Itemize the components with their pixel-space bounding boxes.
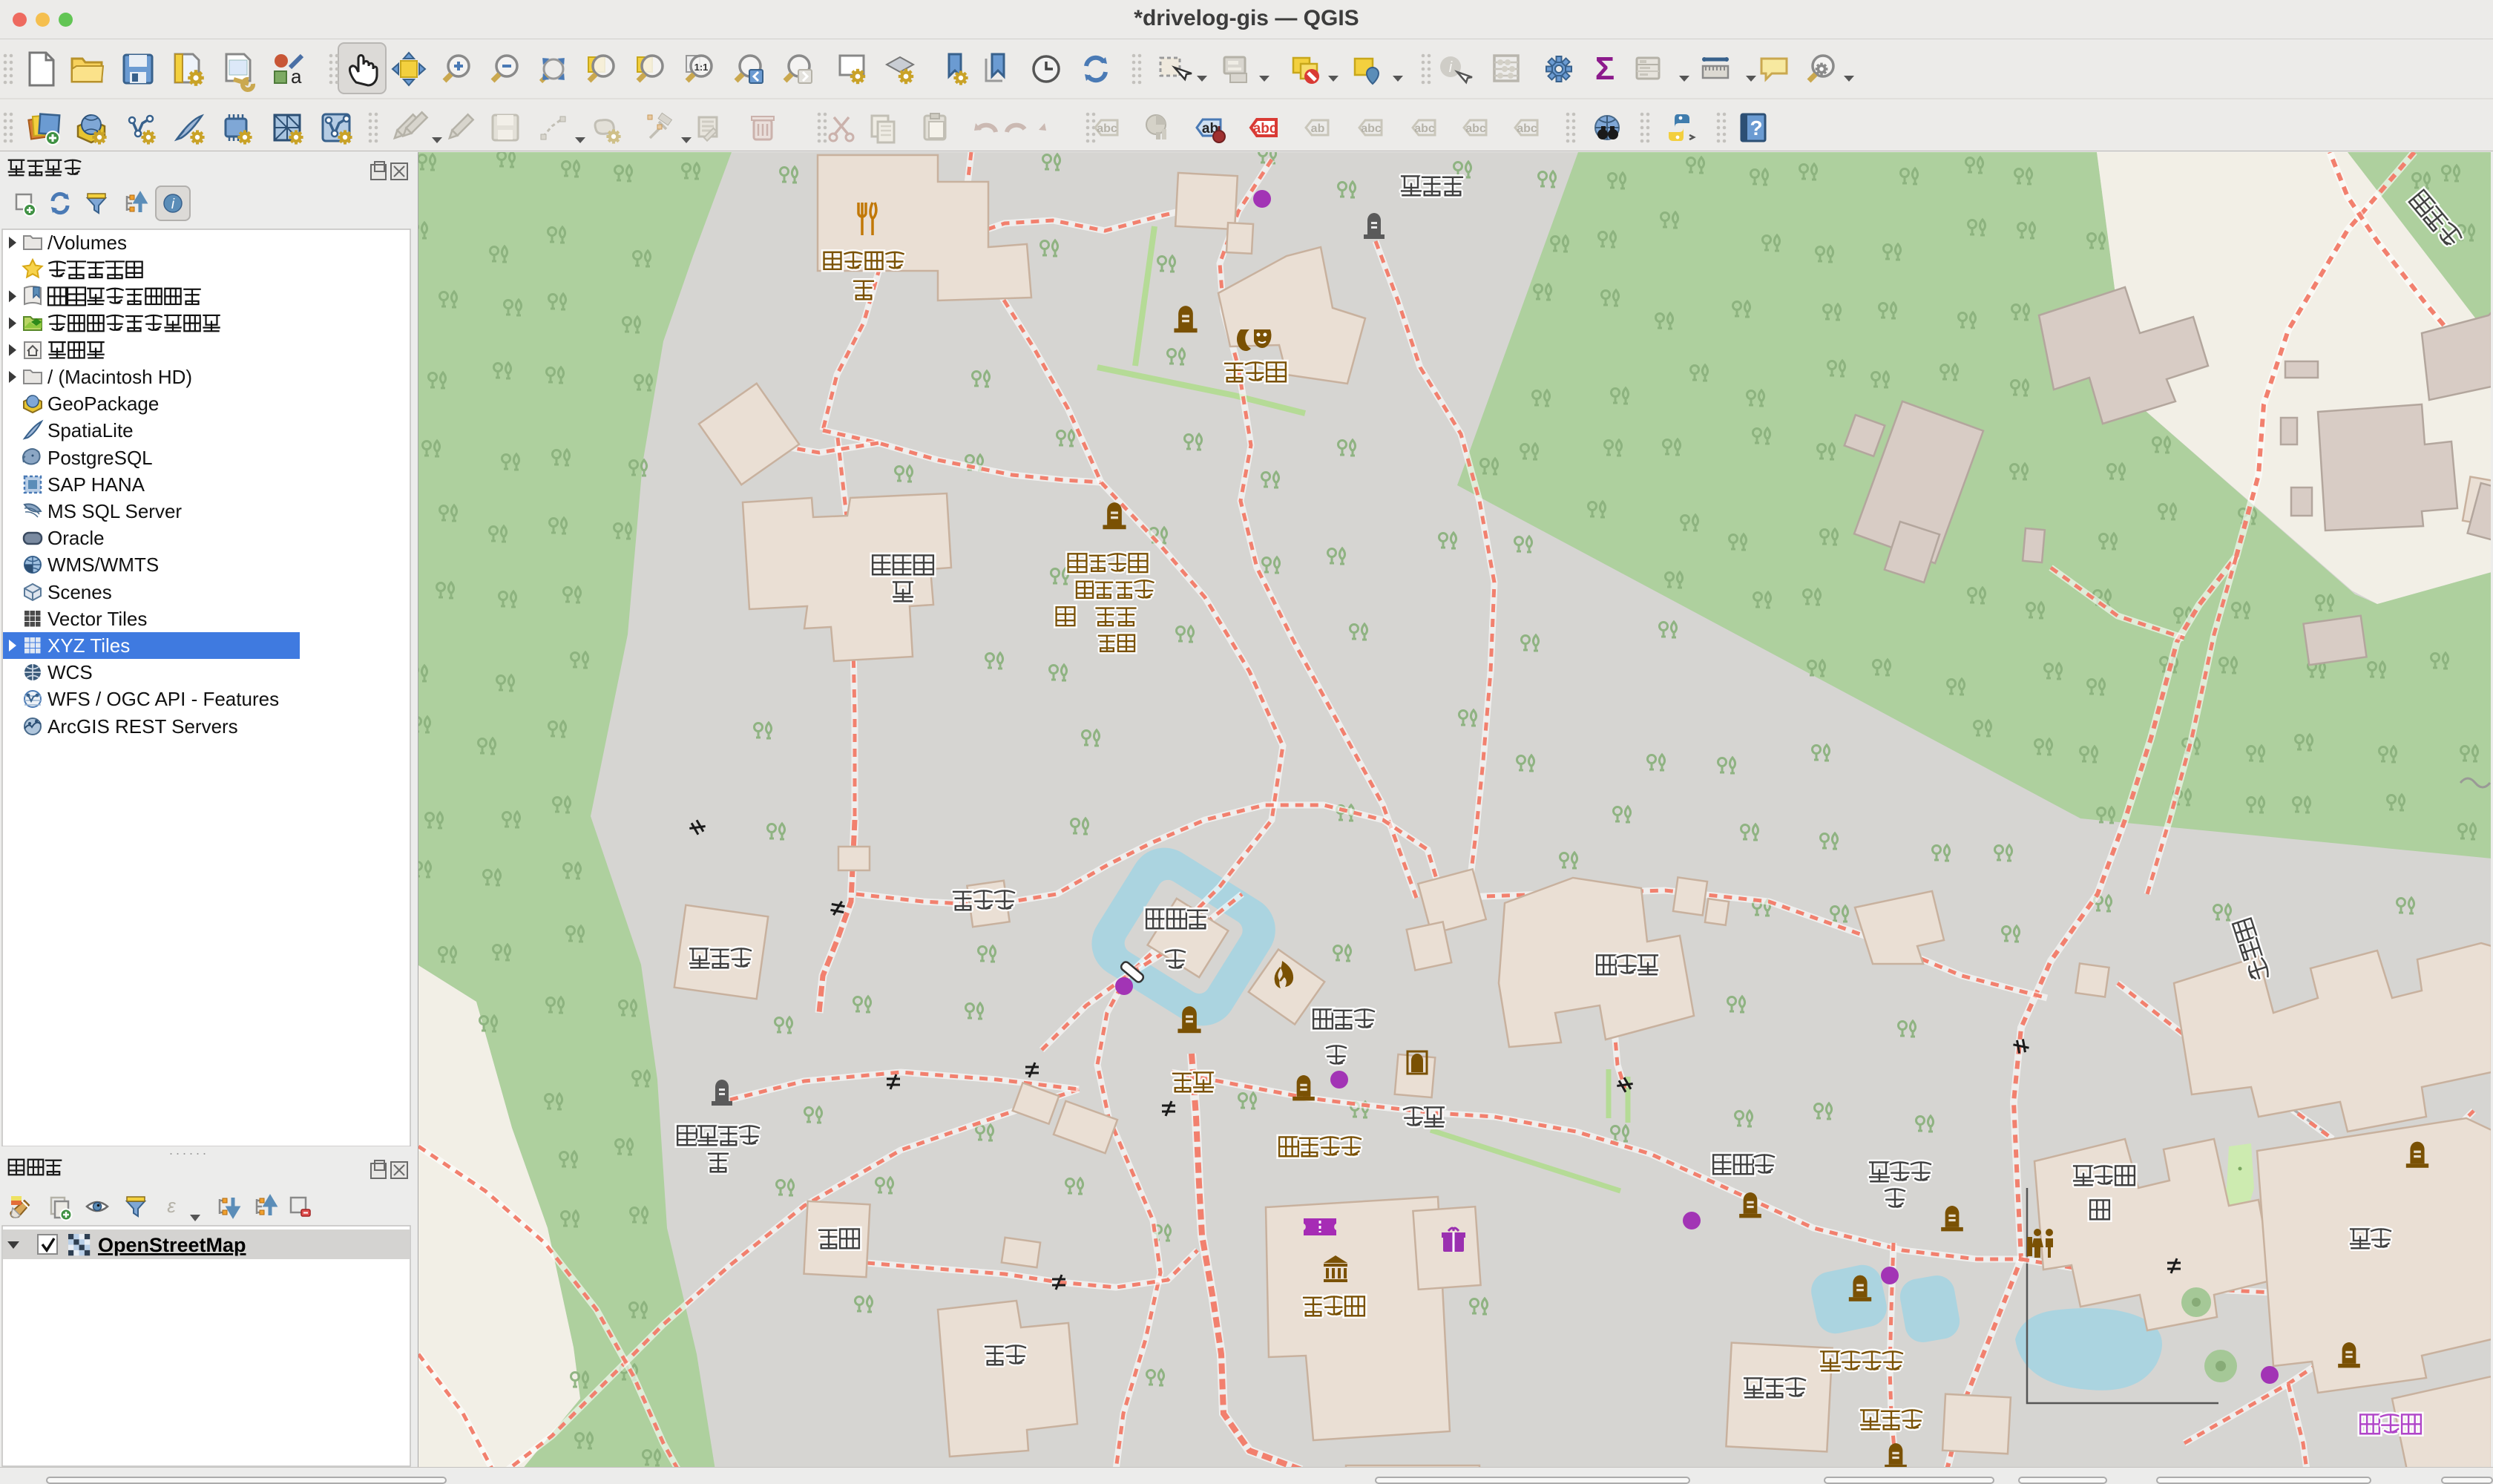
svg-text:/ (Macintosh HD): / (Macintosh HD) bbox=[47, 366, 192, 388]
svg-text:?: ? bbox=[1750, 116, 1762, 139]
svg-text:WMS/WMTS: WMS/WMTS bbox=[47, 554, 159, 576]
svg-text:Oracle: Oracle bbox=[47, 527, 105, 549]
svg-text:abc: abc bbox=[1097, 122, 1117, 135]
svg-text:ε: ε bbox=[167, 1195, 176, 1217]
svg-text:WFS / OGC API - Features: WFS / OGC API - Features bbox=[47, 688, 279, 710]
svg-text:abc: abc bbox=[1361, 122, 1382, 135]
svg-text:WCS: WCS bbox=[47, 661, 93, 683]
svg-text:abc: abc bbox=[1465, 122, 1486, 135]
svg-text:GeoPackage: GeoPackage bbox=[47, 393, 159, 415]
svg-text:i: i bbox=[1449, 59, 1453, 76]
svg-text:1:1: 1:1 bbox=[694, 62, 709, 73]
svg-text:SAP HANA: SAP HANA bbox=[47, 473, 145, 496]
svg-text:/Volumes: /Volumes bbox=[47, 232, 127, 254]
svg-text:MS SQL Server: MS SQL Server bbox=[47, 500, 182, 522]
svg-text:Scenes: Scenes bbox=[47, 581, 112, 603]
svg-text:Vector Tiles: Vector Tiles bbox=[47, 608, 147, 630]
svg-text:OpenStreetMap: OpenStreetMap bbox=[98, 1234, 246, 1256]
svg-text:XYZ Tiles: XYZ Tiles bbox=[47, 634, 130, 657]
svg-text:SpatiaLite: SpatiaLite bbox=[47, 419, 134, 441]
svg-text:PostgreSQL: PostgreSQL bbox=[47, 447, 153, 469]
svg-text:ab: ab bbox=[1311, 122, 1325, 135]
svg-text:abc: abc bbox=[1517, 122, 1537, 135]
svg-text:abc: abc bbox=[1414, 122, 1435, 135]
svg-text:Σ: Σ bbox=[1595, 50, 1615, 87]
svg-text:abc: abc bbox=[1253, 121, 1278, 137]
svg-text:ArcGIS REST Servers: ArcGIS REST Servers bbox=[47, 715, 238, 738]
svg-text:a: a bbox=[291, 65, 302, 88]
